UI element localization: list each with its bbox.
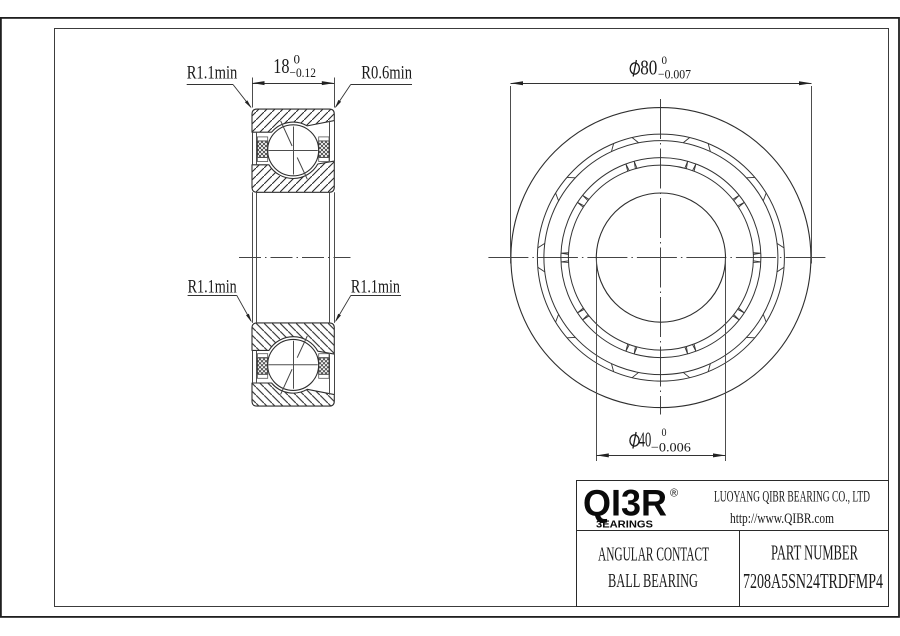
svg-text:R1.1min: R1.1min bbox=[188, 277, 237, 297]
svg-text:LUOYANG QIBR BEARING CO., LTD: LUOYANG QIBR BEARING CO., LTD bbox=[714, 489, 870, 506]
svg-text:80: 80 bbox=[640, 56, 657, 80]
svg-text:ANGULAR CONTACT: ANGULAR CONTACT bbox=[598, 544, 709, 566]
svg-text:−0.12: −0.12 bbox=[290, 65, 317, 80]
svg-text:R0.6min: R0.6min bbox=[361, 63, 412, 83]
svg-text:0: 0 bbox=[662, 53, 668, 67]
svg-text:R1.1min: R1.1min bbox=[351, 277, 400, 297]
svg-text:40: 40 bbox=[639, 428, 652, 452]
svg-text:PART NUMBER: PART NUMBER bbox=[771, 541, 858, 565]
svg-text:http://www.QIBR.com: http://www.QIBR.com bbox=[730, 511, 834, 527]
svg-text:7208A5SN24TRDFMP4: 7208A5SN24TRDFMP4 bbox=[743, 569, 883, 593]
svg-text:−0.006: −0.006 bbox=[651, 440, 692, 455]
svg-text:®: ® bbox=[670, 488, 678, 500]
svg-text:QI3R: QI3R bbox=[583, 483, 667, 524]
svg-text:−0.007: −0.007 bbox=[658, 67, 691, 82]
svg-text:BALL BEARING: BALL BEARING bbox=[608, 570, 698, 592]
svg-text:R1.1min: R1.1min bbox=[187, 63, 238, 83]
svg-text:3EARINGS: 3EARINGS bbox=[596, 519, 653, 531]
svg-text:0: 0 bbox=[662, 425, 667, 439]
svg-text:18: 18 bbox=[273, 54, 289, 78]
